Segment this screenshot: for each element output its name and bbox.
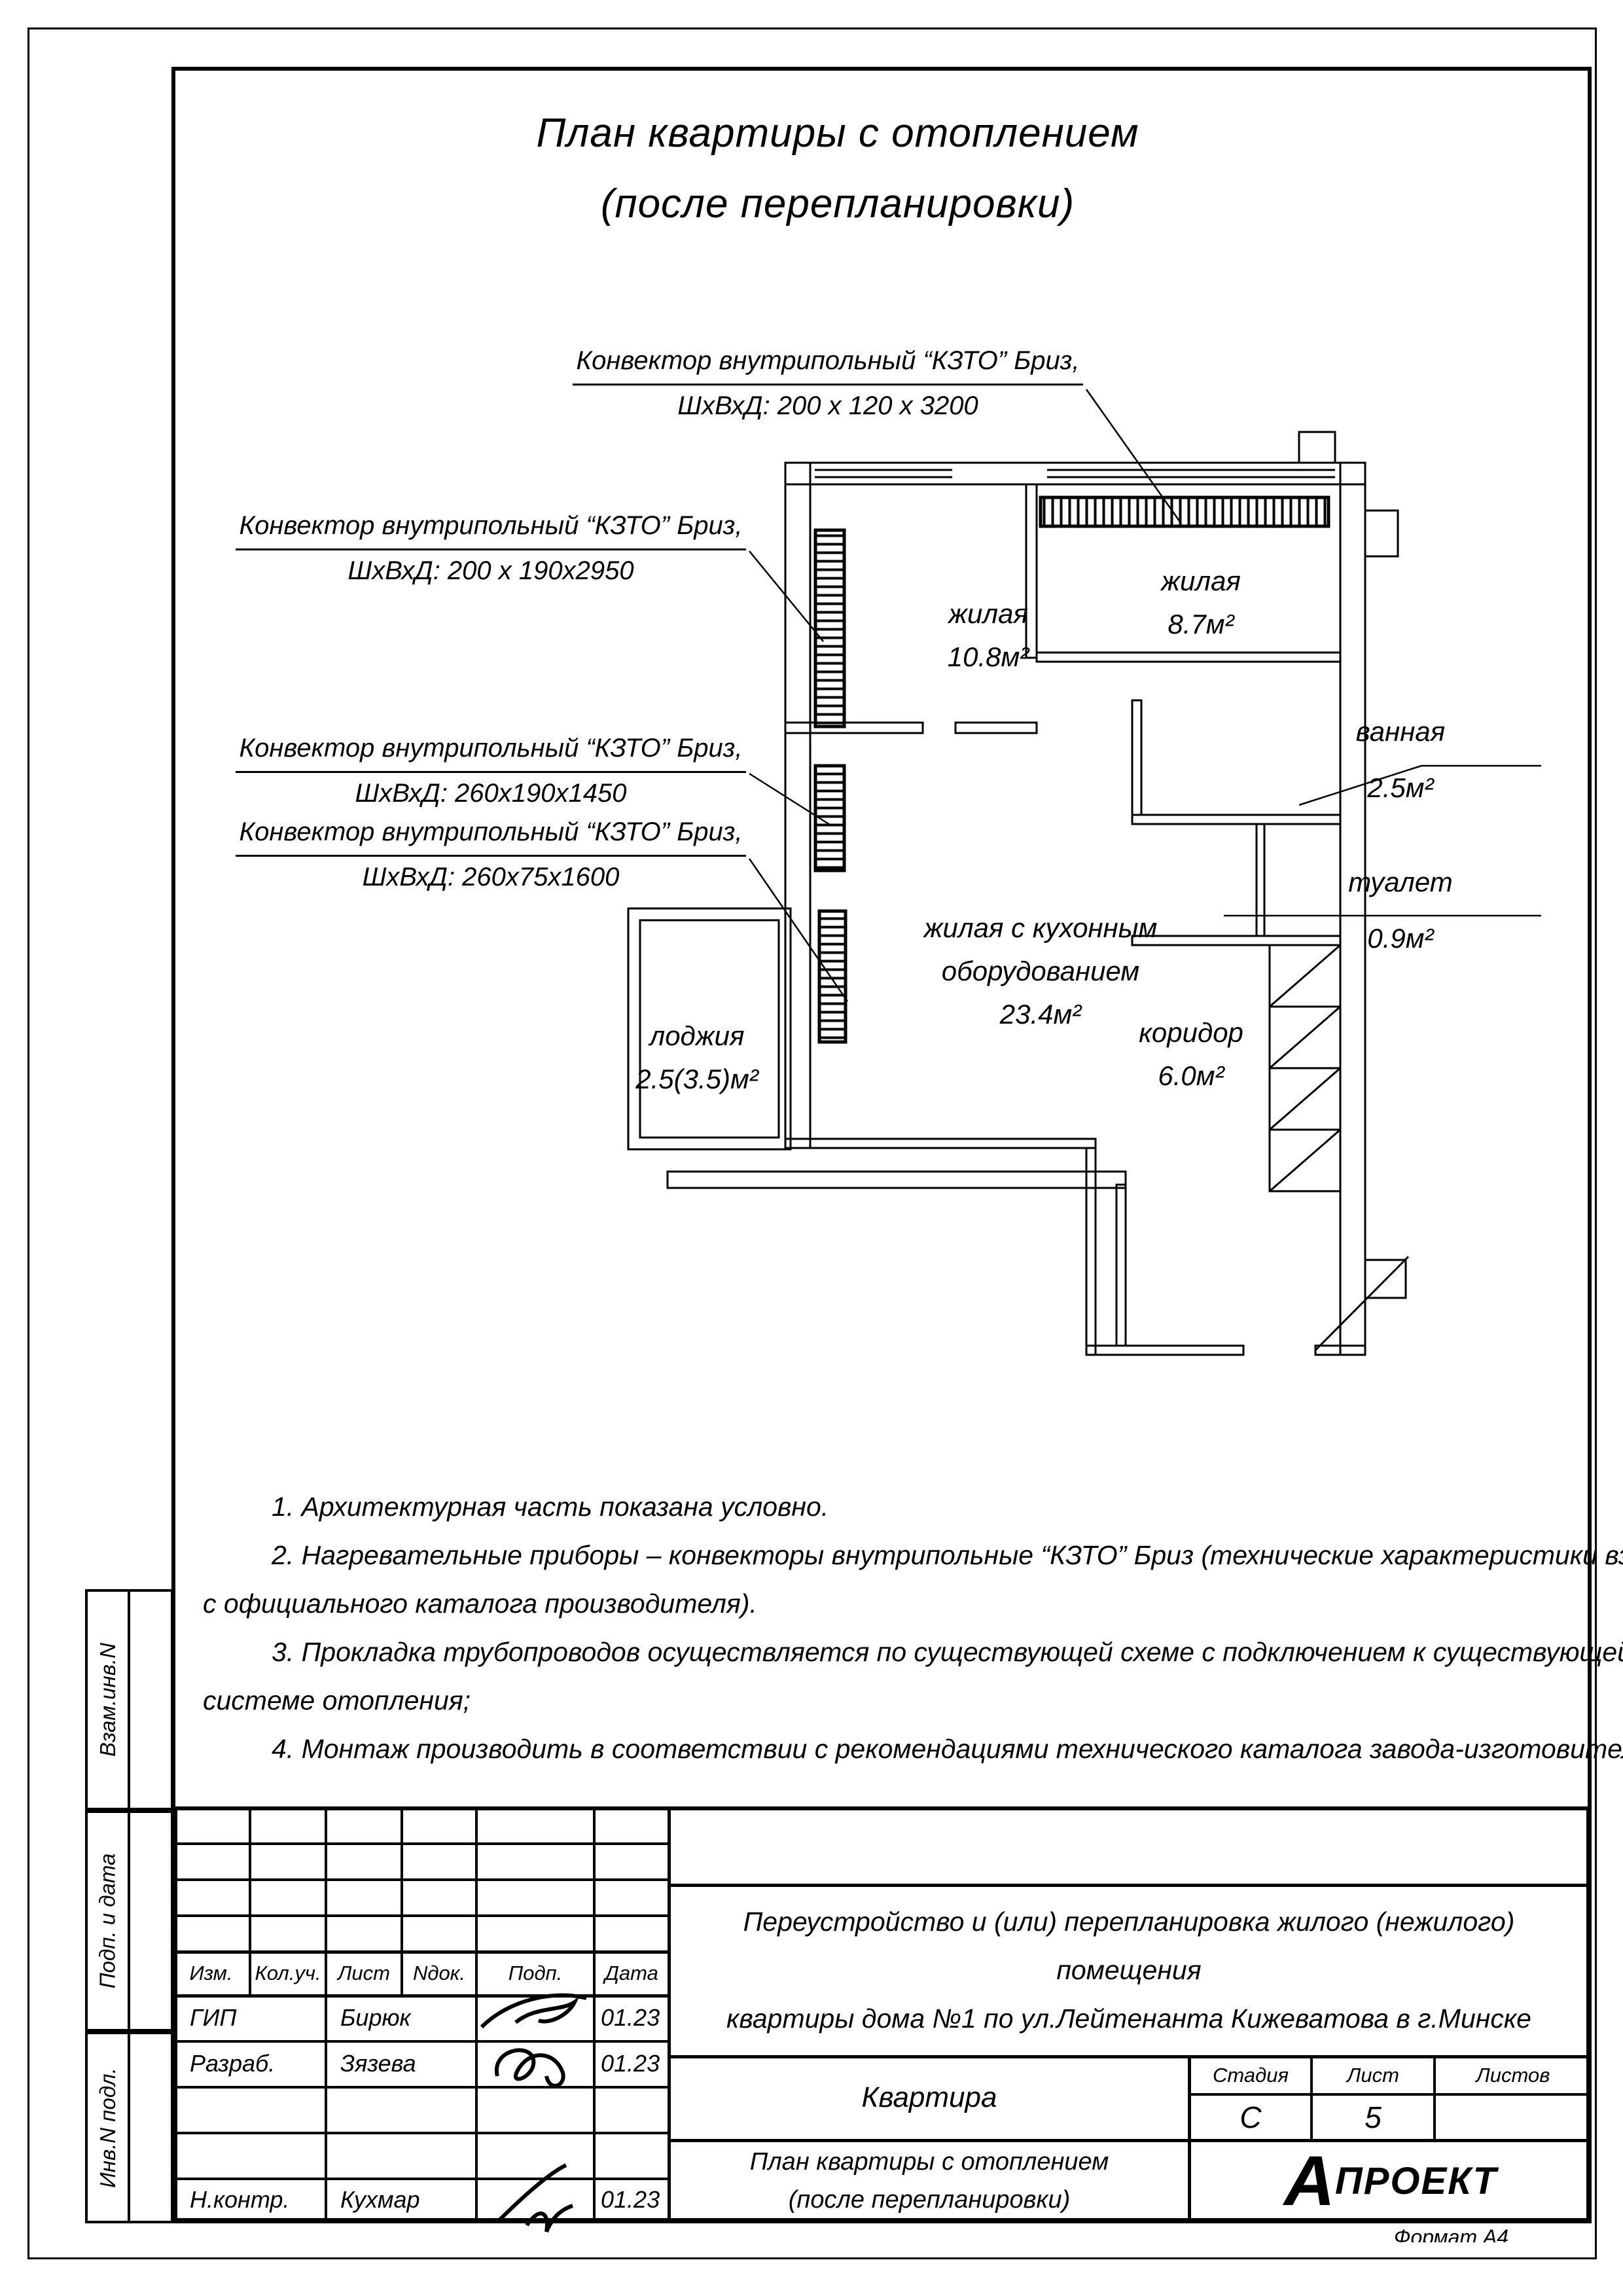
rev-header-list: Лист: [327, 1954, 401, 1993]
note-3b: системе отопления;: [203, 1676, 1512, 1725]
side-box-inv: Инв.N подл.: [85, 2032, 173, 2223]
sheet-name: План квартиры с отоплением (после перепл…: [671, 2142, 1188, 2219]
project-title: Переустройство и (или) перепланировка жи…: [677, 1895, 1580, 2045]
room-kitchen-name2: оборудованием: [870, 950, 1211, 993]
side-label-vzam: Взам.инв.N: [96, 1643, 120, 1757]
project-title-line2: квартиры дома №1 по ул.Лейтенанта Кижева…: [726, 1994, 1531, 2043]
callout-4-line2: ШхВхД: 260х75х1600: [363, 863, 620, 891]
callout-3-line2: ШхВхД: 260х190х1450: [355, 779, 626, 808]
side-label-podp: Подп. и дата: [96, 1854, 120, 1989]
shaft-right-upper: [1365, 511, 1398, 556]
note-2: 2. Нагревательные приборы – конвекторы в…: [203, 1531, 1512, 1579]
duct-diagonal: [1270, 1130, 1340, 1191]
wall-top: [785, 463, 1365, 484]
note-3: 3. Прокладка трубопроводов осуществляетс…: [203, 1628, 1512, 1676]
room-label-living1: жилая 10.8м²: [910, 592, 1067, 679]
wall-kitchen-bottom: [785, 1139, 1096, 1148]
sheet-label: Лист: [1313, 2058, 1433, 2092]
room-corridor-name: коридор: [1113, 1011, 1270, 1054]
stage-value: С: [1191, 2096, 1310, 2139]
partition-room1-bottom-b: [955, 723, 1037, 733]
room-toilet-name: туалет: [1309, 861, 1492, 904]
staff-gip-date: 01.23: [601, 2004, 660, 2032]
room-living1-area: 10.8м²: [910, 636, 1067, 679]
partition-bath-left: [1132, 700, 1141, 815]
room-label-loggia: лоджия 2.5(3.5)м²: [615, 1014, 779, 1101]
stage-label: Стадия: [1191, 2058, 1310, 2092]
room-label-bathroom: ванная 2.5м²: [1309, 710, 1492, 810]
rev-header-ndok: Nдок.: [403, 1954, 475, 1993]
rev-header-koluch: Кол.уч.: [251, 1954, 325, 1993]
side-label-inv: Инв.N подл.: [96, 2068, 120, 2188]
staff-nkontr-role: Н.контр.: [190, 2186, 289, 2214]
floor-plan: [589, 327, 1571, 1388]
room-loggia-name: лоджия: [615, 1014, 779, 1058]
wall-step: [1086, 1148, 1096, 1355]
room-living2-area: 8.7м²: [1122, 603, 1279, 646]
format-note: Формат А4: [1394, 2225, 1590, 2242]
company-logo: АПРОЕКТ: [1191, 2142, 1590, 2219]
signature-nkontr-icon: [488, 2160, 586, 2238]
logo-text: ПРОЕКТ: [1335, 2159, 1497, 2203]
logo-a-glyph: А: [1284, 2145, 1335, 2216]
duct-diagonal: [1270, 1007, 1340, 1068]
slab-edge: [668, 1172, 1126, 1188]
staff-razrab-name: Зязева: [340, 2050, 416, 2077]
page-title-line1: План квартиры с отоплением: [458, 98, 1217, 169]
sheets-value: [1436, 2096, 1590, 2139]
note-2b: с официального каталога производителя).: [203, 1579, 1512, 1628]
object-name: Квартира: [671, 2058, 1188, 2137]
sheets-label: Листов: [1436, 2058, 1590, 2092]
drawing-sheet: План квартиры с отоплением (после перепл…: [0, 0, 1623, 2296]
side-box-podp: Подп. и дата: [85, 1810, 173, 2032]
room-living2-name: жилая: [1122, 560, 1279, 603]
room-loggia-area: 2.5(3.5)м²: [615, 1058, 779, 1101]
note-4: 4. Монтаж производить в соответствии с р…: [203, 1725, 1512, 1773]
convector-kitchen-lower: [819, 911, 846, 1042]
convector-room2: [1041, 497, 1329, 526]
sheet-value: 5: [1313, 2096, 1433, 2139]
partition-bath-bottom: [1132, 815, 1340, 824]
staff-gip-role: ГИП: [190, 2004, 236, 2032]
notes-block: 1. Архитектурная часть показана условно.…: [203, 1482, 1512, 1773]
room-label-toilet: туалет 0.9м²: [1309, 861, 1492, 960]
staff-razrab-date: 01.23: [601, 2050, 660, 2077]
staff-nkontr-date: 01.23: [601, 2186, 660, 2214]
room-label-living2: жилая 8.7м²: [1122, 560, 1279, 646]
sheet-name-line1: План квартиры с отоплением: [750, 2143, 1109, 2181]
convector-room1: [815, 530, 844, 726]
partition-corridor-left: [1116, 1185, 1126, 1346]
room-label-corridor: коридор 6.0м²: [1113, 1011, 1270, 1098]
room-toilet-area: 0.9м²: [1309, 904, 1492, 960]
staff-gip-name: Бирюк: [340, 2004, 411, 2032]
room-bathroom-area: 2.5м²: [1309, 753, 1492, 810]
staff-razrab-role: Разраб.: [190, 2050, 275, 2077]
partition-room1-bottom-a: [785, 723, 923, 733]
duct-diagonal: [1270, 1068, 1340, 1130]
page-title: План квартиры с отоплением (после перепл…: [458, 98, 1217, 240]
page-title-line2: (после перепланировки): [458, 169, 1217, 240]
wall-left: [785, 463, 810, 1148]
note-1: 1. Архитектурная часть показана условно.: [203, 1482, 1512, 1531]
entrance-door-swing: [1315, 1257, 1408, 1350]
room-corridor-area: 6.0м²: [1113, 1054, 1270, 1098]
project-title-line1: Переустройство и (или) перепланировка жи…: [677, 1897, 1580, 1994]
staff-nkontr-name: Кухмар: [340, 2186, 420, 2214]
room-bathroom-name: ванная: [1309, 710, 1492, 753]
side-box-vzam: Взам.инв.N: [85, 1589, 173, 1810]
signature-razrab-icon: [484, 2037, 589, 2096]
sheet-name-line2: (после перепланировки): [789, 2181, 1071, 2219]
wall-corridor-bottom-left: [1086, 1346, 1243, 1355]
signature-gip-icon: [476, 1986, 594, 2040]
room-kitchen-name: жилая с кухонным: [870, 906, 1211, 950]
partition-toilet-right: [1257, 824, 1264, 936]
partition-hall-top: [1037, 653, 1340, 662]
rev-header-izm: Изм.: [173, 1954, 249, 1993]
rev-header-data: Дата: [596, 1954, 668, 1993]
room-living1-name: жилая: [910, 592, 1067, 636]
shaft-top-right: [1299, 432, 1335, 463]
